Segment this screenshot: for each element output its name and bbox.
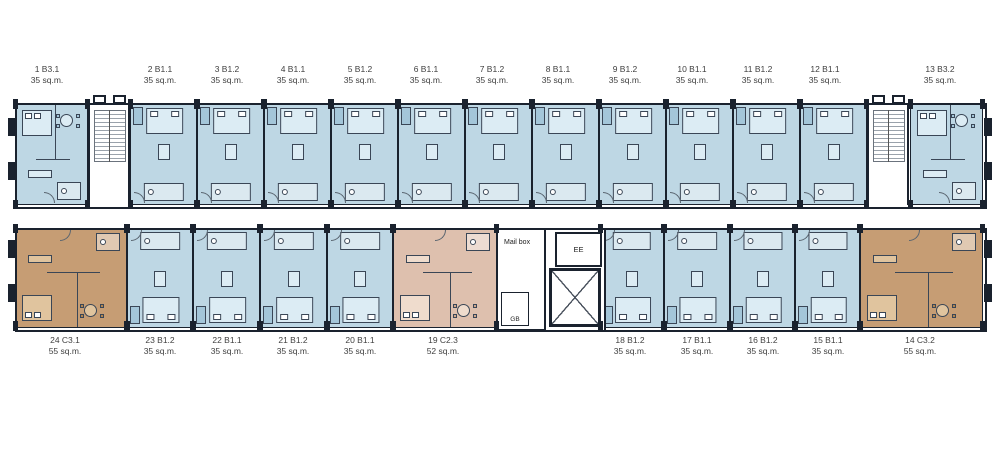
- interior-wall: [423, 272, 472, 273]
- chair-icon: [76, 114, 80, 118]
- dining-table: [955, 114, 968, 127]
- wall-column: [195, 200, 200, 209]
- unit-1: [15, 103, 88, 205]
- unit-number-code: 7 B1.2: [476, 64, 509, 75]
- wall-column: [390, 321, 395, 331]
- unit-label: 16 B1.235 sq.m.: [747, 335, 780, 357]
- wall-column: [908, 200, 913, 209]
- facade-column: [984, 284, 992, 302]
- bathroom: [411, 183, 451, 201]
- wall-column: [128, 99, 133, 109]
- pillow: [639, 314, 647, 320]
- interior-wall: [47, 272, 100, 273]
- unit-label: 13 B3.235 sq.m.: [924, 64, 957, 86]
- interior-wall: [931, 159, 965, 160]
- unit-number-code: 21 B1.2: [277, 335, 310, 346]
- wall-column: [13, 321, 18, 331]
- wall-column: [262, 99, 267, 109]
- chair-icon: [80, 314, 84, 318]
- unit-15: [795, 228, 860, 328]
- wall-column: [324, 224, 329, 233]
- wardrobe: [401, 107, 411, 125]
- wardrobe: [330, 306, 340, 324]
- pillow: [929, 113, 936, 119]
- unit-label: 21 B1.235 sq.m.: [277, 335, 310, 357]
- pillow: [168, 314, 176, 320]
- stair-rail: [109, 110, 110, 162]
- toilet-icon: [344, 238, 350, 244]
- wall-column: [494, 321, 499, 331]
- pillow: [347, 314, 355, 320]
- pillow: [412, 312, 419, 318]
- elevator-shaft-icon: [549, 268, 601, 327]
- wardrobe: [669, 107, 679, 125]
- unit-area: 35 sq.m.: [277, 75, 310, 86]
- pillow: [574, 111, 582, 117]
- unit-area: 35 sq.m.: [609, 75, 642, 86]
- unit-number-code: 14 C3.2: [904, 335, 937, 346]
- stair-treads: [94, 110, 126, 162]
- toilet-icon: [747, 238, 753, 244]
- bed: [22, 295, 52, 321]
- unit-number-code: 9 B1.2: [609, 64, 642, 75]
- bed: [343, 297, 380, 323]
- unit-area: 35 sq.m.: [614, 346, 647, 357]
- unit-number-code: 17 B1.1: [681, 335, 714, 346]
- unit-label: 9 B1.235 sq.m.: [609, 64, 642, 86]
- unit-number-code: 23 B1.2: [144, 335, 177, 346]
- unit-label: 17 B1.135 sq.m.: [681, 335, 714, 357]
- bathroom: [277, 183, 317, 201]
- floorplan-canvas: Mail box GB EE 1 B3.135 sq.m.2 B1.135 sq…: [0, 0, 1000, 461]
- desk-table: [761, 144, 773, 160]
- pillow: [552, 111, 560, 117]
- chair-icon: [473, 304, 477, 308]
- wall-column: [190, 224, 195, 233]
- unit-24: [15, 228, 127, 328]
- pillow: [753, 111, 761, 117]
- unit-number-code: 15 B1.1: [812, 335, 845, 346]
- unit-number-code: 13 B3.2: [924, 64, 957, 75]
- interior-wall: [55, 104, 56, 159]
- chair-icon: [971, 114, 975, 118]
- facade-column: [8, 118, 16, 136]
- pillow: [147, 314, 155, 320]
- unit-number-code: 18 B1.2: [614, 335, 647, 346]
- toilet-icon: [61, 188, 67, 194]
- dining-table: [457, 304, 470, 317]
- unit-area: 35 sq.m.: [681, 346, 714, 357]
- stair-treads: [873, 110, 905, 162]
- unit-label: 10 B1.135 sq.m.: [676, 64, 709, 86]
- bed: [749, 108, 787, 134]
- bed: [280, 108, 318, 134]
- unit-label: 4 B1.135 sq.m.: [277, 64, 310, 86]
- bathroom: [952, 233, 976, 251]
- unit-number-code: 4 B1.1: [277, 64, 310, 75]
- pillow: [619, 111, 627, 117]
- wall-column: [597, 200, 602, 209]
- bed: [917, 110, 947, 136]
- unit-number-code: 2 B1.1: [144, 64, 177, 75]
- unit-label: 19 C2.352 sq.m.: [427, 335, 460, 357]
- gb-room: GB: [501, 292, 529, 326]
- toilet-icon: [214, 189, 220, 195]
- bathroom: [466, 233, 490, 251]
- unit-label: 2 B1.135 sq.m.: [144, 64, 177, 86]
- entry-door-arc: [60, 230, 71, 241]
- wall-column: [798, 99, 803, 109]
- wardrobe: [803, 107, 813, 125]
- unit-area: 35 sq.m.: [211, 346, 244, 357]
- desk-table: [354, 271, 366, 287]
- desk-table: [221, 271, 233, 287]
- bathroom: [273, 232, 313, 250]
- elevator-lobby-label: EE: [573, 245, 583, 254]
- facade-column: [8, 284, 16, 302]
- interior-wall: [36, 159, 70, 160]
- chair-icon: [56, 114, 60, 118]
- wall-column: [598, 321, 603, 331]
- dining-table: [60, 114, 73, 127]
- sofa: [406, 255, 430, 263]
- chair-icon: [100, 304, 104, 308]
- desk-table: [822, 271, 834, 287]
- unit-number-code: 16 B1.2: [747, 335, 780, 346]
- bed: [680, 297, 717, 323]
- wall-column: [13, 200, 18, 209]
- pillow: [870, 312, 877, 318]
- unit-14: [860, 228, 983, 328]
- wall-column: [980, 224, 985, 233]
- wall-column: [598, 224, 603, 233]
- wall-column: [661, 224, 666, 233]
- chair-icon: [56, 124, 60, 128]
- desk-table: [426, 144, 438, 160]
- toilet-icon: [956, 239, 962, 245]
- wall-column: [195, 99, 200, 109]
- chair-icon: [453, 314, 457, 318]
- chair-icon: [951, 114, 955, 118]
- toilet-icon: [277, 238, 283, 244]
- wall-column: [463, 99, 468, 109]
- wall-column: [980, 321, 985, 331]
- pillow: [217, 111, 225, 117]
- stair-vent: [872, 95, 885, 104]
- unit-number-code: 24 C3.1: [49, 335, 82, 346]
- unit-label: 5 B1.235 sq.m.: [344, 64, 377, 86]
- bathroom: [677, 232, 717, 250]
- mailbox-area: Mail box GB: [497, 228, 546, 330]
- entry-door-arc: [435, 230, 446, 241]
- unit-13: [910, 103, 983, 205]
- bed: [810, 297, 847, 323]
- wall-column: [13, 224, 18, 233]
- wall-column: [190, 321, 195, 331]
- unit-area: 35 sq.m.: [31, 75, 64, 86]
- pillow: [708, 111, 716, 117]
- unit-area: 35 sq.m.: [476, 75, 509, 86]
- bathroom: [613, 232, 651, 250]
- desk-table: [627, 144, 639, 160]
- toilet-icon: [144, 238, 150, 244]
- pillow: [284, 111, 292, 117]
- elevator-lobby: EE: [555, 232, 602, 267]
- wall-column: [329, 200, 334, 209]
- unit-area: 35 sq.m.: [747, 346, 780, 357]
- entry-door-arc: [44, 192, 55, 203]
- bed: [414, 108, 452, 134]
- stair-vent: [93, 95, 106, 104]
- bathroom: [344, 183, 384, 201]
- interior-wall: [895, 272, 953, 273]
- bed: [481, 108, 519, 134]
- unit-20: [327, 228, 393, 328]
- desk-table: [626, 271, 638, 287]
- pillow: [820, 111, 828, 117]
- sofa: [28, 170, 52, 178]
- toilet-icon: [683, 189, 689, 195]
- toilet-icon: [617, 238, 623, 244]
- unit-11: [733, 103, 800, 205]
- unit-number-code: 20 B1.1: [344, 335, 377, 346]
- unit-area: 52 sq.m.: [427, 346, 460, 357]
- wall-column: [664, 99, 669, 109]
- unit-area: 35 sq.m.: [144, 346, 177, 357]
- unit-number-code: 8 B1.1: [542, 64, 575, 75]
- unit-number-code: 6 B1.1: [410, 64, 443, 75]
- pillow: [641, 111, 649, 117]
- pillow: [213, 314, 221, 320]
- wardrobe: [133, 107, 143, 125]
- wall-column: [396, 200, 401, 209]
- unit-label: 15 B1.135 sq.m.: [812, 335, 845, 357]
- wardrobe: [267, 107, 277, 125]
- unit-12: [800, 103, 867, 205]
- sofa: [923, 170, 947, 178]
- facade-column: [984, 162, 992, 180]
- desk-table: [225, 144, 237, 160]
- chair-icon: [952, 314, 956, 318]
- toilet-icon: [817, 189, 823, 195]
- unit-label: 20 B1.135 sq.m.: [344, 335, 377, 357]
- unit-area: 35 sq.m.: [344, 75, 377, 86]
- toilet-icon: [100, 239, 106, 245]
- facade-column: [8, 162, 16, 180]
- unit-number-code: 5 B1.2: [344, 64, 377, 75]
- pillow: [150, 111, 158, 117]
- unit-label: 22 B1.135 sq.m.: [211, 335, 244, 357]
- pillow: [280, 314, 288, 320]
- bed: [615, 108, 653, 134]
- toilet-icon: [956, 188, 962, 194]
- bed: [745, 297, 782, 323]
- wall-column: [124, 321, 129, 331]
- unit-number-code: 3 B1.2: [211, 64, 244, 75]
- bed: [548, 108, 586, 134]
- desk-table: [757, 271, 769, 287]
- chair-icon: [100, 314, 104, 318]
- chair-icon: [951, 124, 955, 128]
- toilet-icon: [549, 189, 555, 195]
- wardrobe: [535, 107, 545, 125]
- wall-column: [908, 99, 913, 109]
- wall-column: [661, 321, 666, 331]
- unit-label: 18 B1.235 sq.m.: [614, 335, 647, 357]
- sofa: [28, 255, 52, 263]
- bed: [867, 295, 897, 321]
- unit-16: [730, 228, 795, 328]
- unit-area: 55 sq.m.: [904, 346, 937, 357]
- unit-2: [130, 103, 197, 205]
- unit-18: [600, 228, 664, 328]
- bathroom: [743, 232, 782, 250]
- unit-area: 35 sq.m.: [924, 75, 957, 86]
- wardrobe: [602, 107, 612, 125]
- pillow: [770, 314, 778, 320]
- wall-column: [390, 224, 395, 233]
- unit-label: 1 B3.135 sq.m.: [31, 64, 64, 86]
- sofa: [873, 255, 897, 263]
- stairwell: [867, 103, 909, 205]
- pillow: [686, 111, 694, 117]
- bed: [143, 297, 180, 323]
- unit-6: [398, 103, 465, 205]
- chair-icon: [473, 314, 477, 318]
- pillow: [775, 111, 783, 117]
- unit-17: [664, 228, 730, 328]
- unit-5: [331, 103, 398, 205]
- unit-23: [127, 228, 193, 328]
- toilet-icon: [470, 239, 476, 245]
- pillow: [34, 113, 41, 119]
- unit-19: [393, 228, 497, 328]
- interior-wall: [928, 273, 929, 327]
- facade-column: [8, 240, 16, 258]
- stair-vent: [892, 95, 905, 104]
- bed: [276, 297, 314, 323]
- pillow: [879, 312, 886, 318]
- pillow: [507, 111, 515, 117]
- wall-column: [980, 200, 985, 209]
- unit-label: 23 B1.235 sq.m.: [144, 335, 177, 357]
- floorplan: Mail box GB EE 1 B3.135 sq.m.2 B1.135 sq…: [0, 0, 1000, 461]
- bed: [400, 295, 430, 321]
- wardrobe: [733, 306, 743, 324]
- wall-column: [85, 200, 90, 209]
- pillow: [920, 113, 927, 119]
- pillow: [25, 312, 32, 318]
- unit-label: 8 B1.135 sq.m.: [542, 64, 575, 86]
- wall-column: [792, 224, 797, 233]
- pillow: [684, 314, 692, 320]
- desk-table: [154, 271, 166, 287]
- wall-column: [597, 99, 602, 109]
- pillow: [306, 111, 314, 117]
- wardrobe: [334, 107, 344, 125]
- desk-table: [828, 144, 840, 160]
- unit-area: 55 sq.m.: [49, 346, 82, 357]
- unit-number-code: 22 B1.1: [211, 335, 244, 346]
- unit-3: [197, 103, 264, 205]
- bathroom: [140, 232, 180, 250]
- pillow: [814, 314, 822, 320]
- pillow: [835, 314, 843, 320]
- unit-number-code: 12 B1.1: [809, 64, 842, 75]
- toilet-icon: [812, 238, 818, 244]
- bathroom: [545, 183, 585, 201]
- pillow: [172, 111, 180, 117]
- bathroom: [340, 232, 380, 250]
- wall-column: [727, 224, 732, 233]
- stairwell: [88, 103, 130, 205]
- unit-area: 35 sq.m.: [410, 75, 443, 86]
- wall-column: [329, 99, 334, 109]
- bed: [816, 108, 854, 134]
- wardrobe: [798, 306, 808, 324]
- bathroom: [808, 232, 847, 250]
- desk-table: [493, 144, 505, 160]
- wall-column: [864, 99, 869, 109]
- wall-column: [731, 200, 736, 209]
- unit-label: 14 C3.255 sq.m.: [904, 335, 937, 357]
- unit-area: 35 sq.m.: [742, 75, 775, 86]
- facade-column: [984, 240, 992, 258]
- wall-column: [798, 200, 803, 209]
- pillow: [440, 111, 448, 117]
- toilet-icon: [348, 189, 354, 195]
- wardrobe: [736, 107, 746, 125]
- bathroom: [612, 183, 652, 201]
- wall-column: [857, 321, 862, 331]
- pillow: [418, 111, 426, 117]
- interior-wall: [950, 104, 951, 159]
- stair-rail: [888, 110, 889, 162]
- unit-area: 35 sq.m.: [144, 75, 177, 86]
- pillow: [842, 111, 850, 117]
- pillow: [235, 314, 243, 320]
- dining-table: [936, 304, 949, 317]
- pillow: [373, 111, 381, 117]
- wall-column: [396, 99, 401, 109]
- unit-area: 35 sq.m.: [676, 75, 709, 86]
- pillow: [239, 111, 247, 117]
- unit-21: [260, 228, 327, 328]
- wardrobe: [196, 306, 206, 324]
- desk-table: [560, 144, 572, 160]
- unit-area: 35 sq.m.: [542, 75, 575, 86]
- chair-icon: [971, 124, 975, 128]
- unit-7: [465, 103, 532, 205]
- chair-icon: [932, 314, 936, 318]
- pillow: [351, 111, 359, 117]
- stair-vent: [113, 95, 126, 104]
- pillow: [25, 113, 32, 119]
- desk-table: [288, 271, 300, 287]
- wall-column: [530, 200, 535, 209]
- unit-10: [666, 103, 733, 205]
- wardrobe: [200, 107, 210, 125]
- toilet-icon: [415, 189, 421, 195]
- bathroom: [679, 183, 719, 201]
- unit-number-code: 1 B3.1: [31, 64, 64, 75]
- unit-22: [193, 228, 260, 328]
- wall-column: [980, 99, 985, 109]
- pillow: [403, 312, 410, 318]
- toilet-icon: [750, 189, 756, 195]
- pillow: [302, 314, 310, 320]
- wardrobe: [468, 107, 478, 125]
